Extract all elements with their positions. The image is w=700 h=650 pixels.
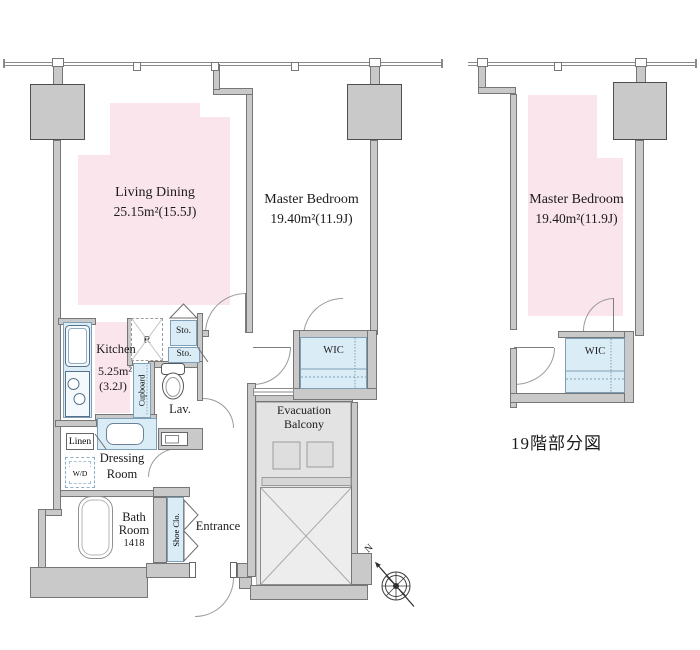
wall [158, 428, 203, 450]
wall [38, 509, 46, 570]
rail-cap [369, 58, 381, 67]
door-arc [514, 348, 555, 385]
door-jamb [189, 562, 196, 578]
rail-post [133, 62, 141, 71]
rail-cap [477, 58, 488, 67]
shoe-closet-box: Shoe Clo. [167, 497, 184, 562]
pillar [613, 82, 667, 140]
washer-dryer-label: W/D [73, 469, 88, 478]
rail-end-cap [695, 59, 697, 68]
kitchen-name: Kitchen [93, 343, 139, 356]
storage-lower-label: Sto. [168, 350, 200, 360]
living-dining-floor [200, 117, 230, 155]
kitchen-area-sqm: 5.25m² [92, 365, 138, 378]
dressing-room-line1: Dressing [88, 452, 156, 465]
rail-post [291, 62, 299, 71]
entrance-door-arc [195, 578, 234, 617]
entrance-label: Entrance [186, 520, 250, 533]
door-arc [203, 398, 234, 428]
wall [146, 563, 191, 578]
shoe-closet-label: Shoe Clo. [171, 513, 181, 547]
cupboard-label: Cupboard [138, 375, 147, 407]
evacuation-balcony-line2: Balcony [260, 418, 348, 431]
wall [153, 487, 190, 497]
linen-box: Linen [66, 433, 94, 450]
refrigerator-label: R [143, 334, 150, 346]
balcony-rail-line [468, 62, 697, 63]
rail-cap [635, 58, 647, 67]
wall [247, 383, 256, 577]
wall [293, 388, 377, 400]
wall [250, 585, 368, 600]
door-arc [253, 347, 291, 385]
compass-rose-icon [375, 562, 414, 607]
wall [510, 393, 634, 403]
bath-room-line2: Room [111, 524, 157, 537]
pillar-neck [636, 66, 646, 83]
wall [635, 140, 644, 336]
pillar-neck [370, 66, 380, 85]
rail-post [211, 62, 219, 71]
wall [30, 567, 148, 598]
wall [478, 87, 516, 94]
wall [60, 490, 155, 497]
wall [351, 553, 372, 585]
wall [55, 420, 97, 427]
rail-post [554, 62, 562, 71]
linen-label: Linen [69, 437, 91, 447]
bathtub-icon [79, 497, 113, 559]
wic-left-label: WIC [300, 345, 367, 356]
rail-end-cap [3, 59, 5, 68]
wall [558, 331, 634, 338]
right-master-bedroom-area: 19.40m²(11.9J) [508, 212, 645, 226]
kitchen-area-jo: (3.2J) [90, 380, 136, 393]
right-master-bedroom-floor [528, 158, 623, 316]
rail-cap [52, 58, 64, 67]
living-dining-name: Living Dining [85, 186, 225, 201]
living-dining-floor [110, 103, 200, 155]
right-master-bedroom-floor [528, 95, 597, 158]
wic-right-label: WIC [565, 346, 625, 357]
wall [370, 140, 378, 335]
living-dining-floor [78, 155, 230, 305]
kitchen-counter [63, 322, 92, 418]
floor-plan-canvas: Cupboard Shoe Clo. Linen W/D R [0, 0, 700, 650]
wall [624, 331, 634, 403]
master-bedroom-name: Master Bedroom [243, 193, 380, 208]
pillar [347, 84, 402, 140]
storage-upper-label: Sto. [170, 327, 197, 337]
balcony-rail-line [468, 65, 697, 66]
right-master-bedroom-name: Master Bedroom [508, 193, 645, 208]
storage-door-chevron [170, 304, 197, 318]
wall [53, 140, 61, 513]
dressing-room-line2: Room [88, 468, 156, 481]
rail-end-cap [441, 59, 443, 68]
wall [351, 402, 358, 555]
vanity-counter [97, 418, 157, 450]
pillar-neck [53, 66, 63, 85]
door-jamb [230, 562, 237, 578]
hatch-area [260, 487, 352, 585]
window [253, 388, 294, 396]
master-bedroom-area: 19.40m²(11.9J) [243, 212, 380, 226]
lavatory-label: Lav. [158, 403, 202, 416]
toilet-icon [162, 364, 185, 400]
pillar [30, 84, 85, 140]
wall [197, 361, 203, 401]
bath-room-size: 1418 [111, 538, 157, 549]
floor-caption: 19階部分図 [511, 435, 602, 453]
living-dining-area: 25.15m²(15.5J) [85, 205, 225, 219]
evacuation-balcony-line1: Evacuation [260, 404, 348, 417]
